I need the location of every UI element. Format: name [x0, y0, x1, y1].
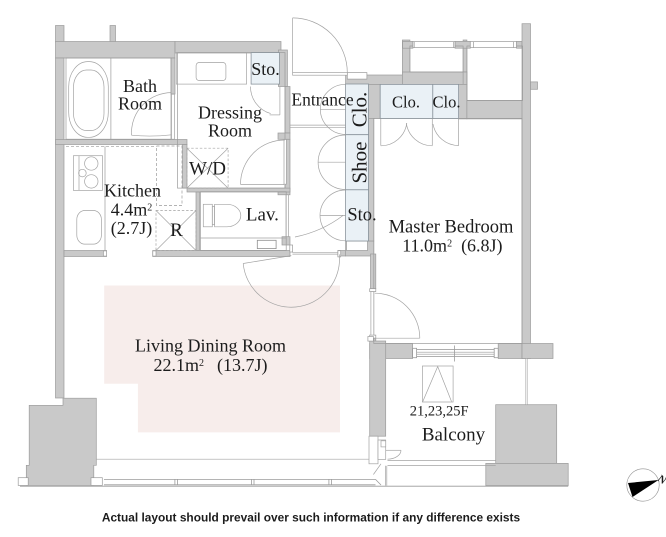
svg-text:Sto.: Sto.	[251, 59, 280, 79]
svg-text:Room: Room	[208, 121, 252, 141]
svg-text:(2.7J): (2.7J)	[111, 218, 153, 239]
svg-text:Room: Room	[118, 94, 162, 114]
svg-text:Clo.: Clo.	[392, 93, 420, 112]
svg-text:4.4m2: 4.4m2	[111, 200, 153, 220]
svg-text:Clo.: Clo.	[433, 93, 461, 112]
svg-text:Master Bedroom: Master Bedroom	[389, 217, 514, 237]
svg-text:Balcony: Balcony	[422, 424, 486, 445]
svg-text:Actual layout should prevail o: Actual layout should prevail over such i…	[102, 511, 521, 525]
svg-text:Clo.: Clo.	[348, 92, 372, 128]
svg-text:R: R	[170, 220, 183, 241]
svg-text:W/D: W/D	[189, 159, 226, 180]
svg-text:Entrance: Entrance	[291, 90, 353, 110]
svg-text:Living Dining Room: Living Dining Room	[135, 336, 286, 356]
svg-text:21,23,25F: 21,23,25F	[410, 404, 469, 420]
svg-text:Shoe: Shoe	[348, 142, 372, 184]
svg-text:Sto.: Sto.	[347, 206, 376, 226]
svg-text:Lav.: Lav.	[246, 205, 279, 226]
svg-text:Dressing: Dressing	[198, 103, 262, 123]
svg-text:Kitchen: Kitchen	[104, 181, 161, 201]
